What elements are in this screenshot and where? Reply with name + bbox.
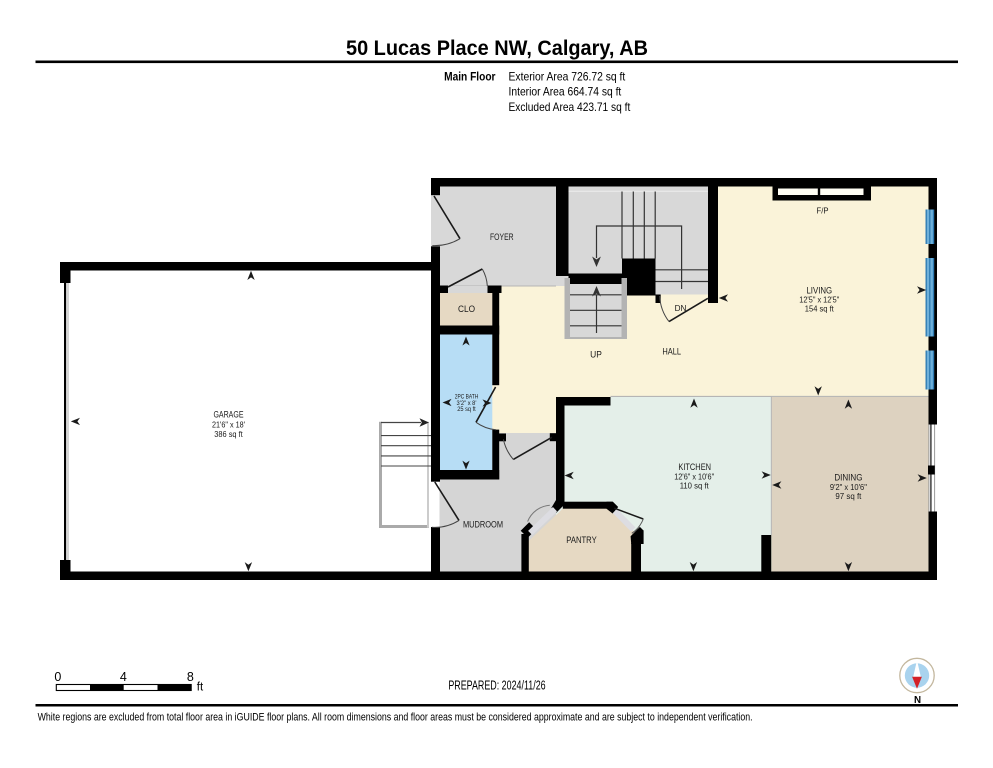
svg-text:ft: ft — [197, 682, 204, 694]
svg-text:KITCHEN: KITCHEN — [678, 461, 711, 472]
svg-text:PREPARED: 2024/11/26: PREPARED: 2024/11/26 — [448, 678, 545, 693]
svg-text:12'5" x 12'5": 12'5" x 12'5" — [799, 295, 839, 304]
svg-text:386 sq ft: 386 sq ft — [214, 430, 243, 439]
svg-text:21'6" x 18': 21'6" x 18' — [212, 420, 245, 429]
svg-text:F/P: F/P — [817, 206, 829, 216]
svg-text:154 sq ft: 154 sq ft — [805, 304, 835, 313]
svg-text:9'2" x 10'6": 9'2" x 10'6" — [830, 483, 867, 492]
svg-text:FOYER: FOYER — [490, 231, 514, 242]
svg-text:50 Lucas Place NW, Calgary, AB: 50 Lucas Place NW, Calgary, AB — [346, 37, 648, 60]
svg-text:HALL: HALL — [662, 346, 681, 357]
svg-text:White regions are excluded fro: White regions are excluded from total fl… — [38, 712, 753, 724]
svg-text:PANTRY: PANTRY — [566, 534, 597, 545]
svg-text:25 sq ft: 25 sq ft — [457, 407, 476, 413]
svg-text:GARAGE: GARAGE — [213, 409, 243, 420]
svg-text:97 sq ft: 97 sq ft — [835, 492, 862, 501]
svg-text:Interior Area 664.74 sq ft: Interior Area 664.74 sq ft — [509, 85, 622, 99]
svg-text:4: 4 — [120, 670, 127, 684]
svg-text:DN: DN — [675, 303, 687, 313]
svg-text:12'6" x 10'6": 12'6" x 10'6" — [674, 472, 714, 481]
svg-text:0: 0 — [54, 670, 61, 684]
svg-text:110 sq ft: 110 sq ft — [680, 482, 710, 491]
svg-text:Main Floor: Main Floor — [444, 70, 496, 84]
svg-text:CLO: CLO — [458, 303, 475, 314]
svg-text:3'2" x 8': 3'2" x 8' — [457, 401, 477, 407]
svg-text:DINING: DINING — [834, 472, 862, 483]
svg-text:LIVING: LIVING — [806, 285, 832, 296]
svg-text:Exterior Area 726.72 sq ft: Exterior Area 726.72 sq ft — [509, 70, 626, 84]
svg-text:2PC BATH: 2PC BATH — [455, 393, 479, 400]
svg-text:Excluded Area 423.71 sq ft: Excluded Area 423.71 sq ft — [509, 100, 631, 114]
svg-text:MUDROOM: MUDROOM — [463, 519, 503, 530]
svg-text:8: 8 — [187, 670, 194, 684]
svg-text:UP: UP — [590, 349, 602, 360]
